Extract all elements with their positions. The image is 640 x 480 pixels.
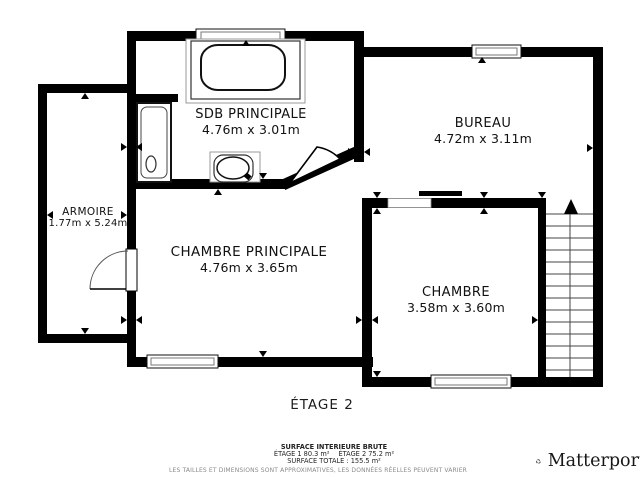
armoire-door bbox=[90, 249, 137, 291]
room-name: BUREAU bbox=[434, 116, 532, 131]
surface-total: SURFACE TOTALE : 155.5 m² bbox=[274, 458, 394, 465]
room-label-chambre: CHAMBRE 3.58m x 3.60m bbox=[407, 285, 505, 315]
room-dimensions: 1.77m x 5.24m bbox=[49, 218, 128, 229]
bathtub bbox=[186, 39, 305, 103]
room-label-bureau: BUREAU 4.72m x 3.11m bbox=[434, 116, 532, 146]
room-dimensions: 4.72m x 3.11m bbox=[434, 131, 532, 146]
floor-plan-page: SDB PRINCIPALE 4.76m x 3.01m BUREAU 4.72… bbox=[0, 0, 640, 480]
matterport-logo: Matterport bbox=[536, 445, 640, 477]
surface-summary: SURFACE INTERIEURE BRUTE ÉTAGE 1 80.3 m²… bbox=[274, 444, 394, 466]
bureau-window bbox=[472, 45, 521, 58]
matterport-logo-icon bbox=[536, 447, 541, 476]
room-name: CHAMBRE bbox=[407, 285, 505, 300]
room-dimensions: 4.76m x 3.01m bbox=[195, 122, 307, 137]
toilet bbox=[210, 152, 260, 182]
room-name: SDB PRINCIPALE bbox=[195, 107, 307, 122]
room-dimensions: 3.58m x 3.60m bbox=[407, 300, 505, 315]
room-name: ARMOIRE bbox=[49, 206, 128, 218]
stairs-up-arrow bbox=[564, 199, 578, 214]
matterport-logo-text: Matterport bbox=[548, 451, 640, 471]
room-label-sdb-principale: SDB PRINCIPALE 4.76m x 3.01m bbox=[195, 107, 307, 137]
floor-title: ÉTAGE 2 bbox=[290, 397, 354, 413]
staircase bbox=[546, 206, 593, 377]
chambre-window bbox=[431, 375, 511, 388]
shower bbox=[137, 103, 171, 182]
room-label-chambre-principale: CHAMBRE PRINCIPALE 4.76m x 3.65m bbox=[171, 244, 328, 275]
disclaimer-text: LES TAILLES ET DIMENSIONS SONT APPROXIMA… bbox=[169, 467, 467, 474]
room-name: CHAMBRE PRINCIPALE bbox=[171, 244, 328, 260]
chambre-principale-window bbox=[147, 355, 218, 368]
room-label-armoire: ARMOIRE 1.77m x 5.24m bbox=[49, 206, 128, 229]
room-dimensions: 4.76m x 3.65m bbox=[171, 260, 328, 275]
